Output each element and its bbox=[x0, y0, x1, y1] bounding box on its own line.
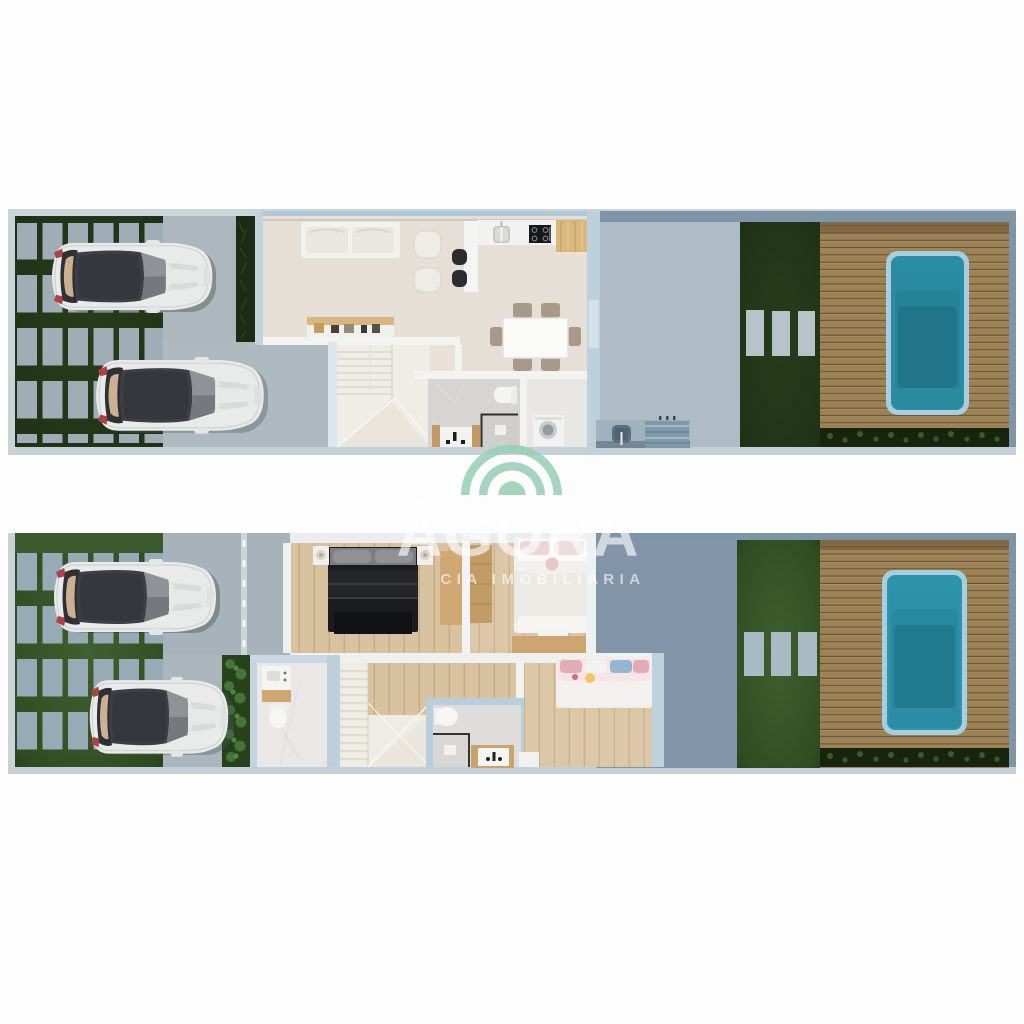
svg-text:CIA IMOBILIÁRIA: CIA IMOBILIÁRIA bbox=[440, 571, 645, 588]
svg-text:ÁGORA: ÁGORA bbox=[396, 498, 639, 570]
